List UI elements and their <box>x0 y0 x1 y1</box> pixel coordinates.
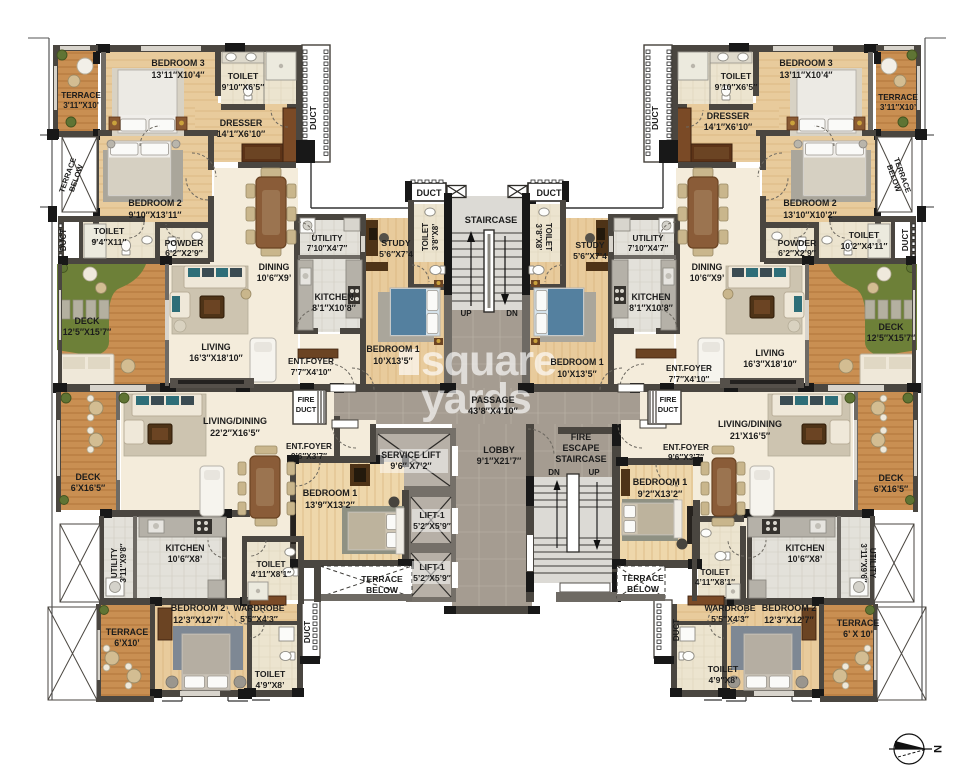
svg-text:UTILITY: UTILITY <box>110 547 119 578</box>
svg-text:10’2″X4’11″: 10’2″X4’11″ <box>841 241 888 251</box>
svg-text:BEDROOM 1: BEDROOM 1 <box>366 344 419 354</box>
svg-text:3’11″X9’8″: 3’11″X9’8″ <box>119 543 128 582</box>
svg-text:13’9″X13’2″: 13’9″X13’2″ <box>305 500 355 510</box>
svg-text:8’1″X10’8″: 8’1″X10’8″ <box>312 303 356 313</box>
svg-text:4’11″X8’1″: 4’11″X8’1″ <box>251 570 291 579</box>
svg-text:DECK: DECK <box>879 473 905 483</box>
svg-text:3’11″X9’6″: 3’11″X9’6″ <box>859 543 868 582</box>
svg-text:BEDROOM 1: BEDROOM 1 <box>303 488 358 498</box>
svg-text:DUCT: DUCT <box>650 105 660 130</box>
svg-text:6’X16’5″: 6’X16’5″ <box>874 484 909 494</box>
svg-text:WARDROBE: WARDROBE <box>704 603 755 613</box>
svg-text:9’1″X21’7″: 9’1″X21’7″ <box>477 456 522 466</box>
svg-text:DUCT: DUCT <box>296 405 317 414</box>
svg-text:13’10″X10’2″: 13’10″X10’2″ <box>783 210 837 220</box>
svg-text:14’1″X6’10″: 14’1″X6’10″ <box>704 122 753 132</box>
svg-text:DRESSER: DRESSER <box>707 111 750 121</box>
svg-text:BEDROOM 2: BEDROOM 2 <box>128 198 181 208</box>
svg-text:5’5″X4’3″: 5’5″X4’3″ <box>711 614 749 624</box>
svg-text:TOILET: TOILET <box>257 560 286 569</box>
svg-text:DUCT: DUCT <box>59 229 68 251</box>
svg-text:POWDER: POWDER <box>778 238 817 248</box>
svg-text:5’2″X5’9″: 5’2″X5’9″ <box>413 573 451 583</box>
svg-text:8’1″X10’8″: 8’1″X10’8″ <box>629 303 673 313</box>
svg-text:BEDROOM 2: BEDROOM 2 <box>762 603 817 613</box>
svg-text:KITCHEN: KITCHEN <box>165 543 204 553</box>
svg-text:KITCHEN: KITCHEN <box>314 292 353 302</box>
svg-text:UP: UP <box>588 468 600 477</box>
svg-text:12’3″X12’7″: 12’3″X12’7″ <box>764 615 814 625</box>
svg-text:TOILET: TOILET <box>255 669 286 679</box>
svg-text:TOILET: TOILET <box>228 71 259 81</box>
svg-text:9’4″X11″: 9’4″X11″ <box>92 237 127 247</box>
svg-text:14’1″X6’10″: 14’1″X6’10″ <box>217 129 266 139</box>
svg-text:7’7″X4’10″: 7’7″X4’10″ <box>669 375 710 384</box>
svg-text:TOILET: TOILET <box>721 71 752 81</box>
svg-text:FIRE: FIRE <box>298 395 315 404</box>
svg-text:TOILET: TOILET <box>421 223 430 251</box>
svg-text:FIRE: FIRE <box>571 432 592 442</box>
svg-text:UTILITY: UTILITY <box>312 234 343 243</box>
svg-text:21’X16’5″: 21’X16’5″ <box>730 431 771 441</box>
svg-text:TOILET: TOILET <box>94 226 125 236</box>
svg-text:TERRACE: TERRACE <box>61 91 101 100</box>
svg-text:WARDROBE: WARDROBE <box>233 603 284 613</box>
svg-text:BEDROOM 1: BEDROOM 1 <box>633 477 688 487</box>
svg-text:6’2″X2’9″: 6’2″X2’9″ <box>778 248 816 258</box>
svg-text:DECK: DECK <box>879 322 905 332</box>
svg-text:9’10″X13’11″: 9’10″X13’11″ <box>129 210 183 220</box>
svg-text:TERRACE: TERRACE <box>106 627 149 637</box>
svg-text:BELOW: BELOW <box>366 585 399 595</box>
svg-text:13’11″X10’4″: 13’11″X10’4″ <box>152 70 206 80</box>
svg-text:DN: DN <box>548 468 560 477</box>
svg-text:3’11″X10’: 3’11″X10’ <box>880 103 916 112</box>
svg-text:6’X10’: 6’X10’ <box>114 638 139 648</box>
svg-text:6’X16’5″: 6’X16’5″ <box>71 483 106 493</box>
svg-text:10’6″X9’: 10’6″X9’ <box>257 273 292 283</box>
svg-text:10’X13’5″: 10’X13’5″ <box>557 369 597 379</box>
svg-text:DUCT: DUCT <box>308 105 318 130</box>
svg-text:16’3″X18’10″: 16’3″X18’10″ <box>189 353 243 363</box>
svg-text:TERRACE: TERRACE <box>878 93 918 102</box>
svg-text:TOILET: TOILET <box>544 223 553 251</box>
svg-text:BELOW: BELOW <box>627 584 660 594</box>
svg-text:TOILET: TOILET <box>708 664 739 674</box>
svg-text:ESCAPE: ESCAPE <box>562 443 599 453</box>
svg-text:BEDROOM 1: BEDROOM 1 <box>550 357 603 367</box>
svg-text:DUCT: DUCT <box>303 621 312 643</box>
svg-text:5’2″X5’9″: 5’2″X5’9″ <box>413 521 451 531</box>
svg-text:STUDY: STUDY <box>575 240 604 250</box>
svg-text:3'11″X10': 3'11″X10' <box>63 101 99 110</box>
svg-text:FIRE: FIRE <box>660 395 677 404</box>
svg-text:DRESSER: DRESSER <box>220 118 263 128</box>
svg-text:4’9″X8’: 4’9″X8’ <box>256 680 285 690</box>
svg-text:N: N <box>931 745 943 753</box>
svg-text:12’5″X15’7″: 12’5″X15’7″ <box>867 333 916 343</box>
svg-text:3’8″X8’: 3’8″X8’ <box>534 224 543 251</box>
svg-text:LIVING/DINING: LIVING/DINING <box>203 416 267 426</box>
svg-text:ENT.FOYER: ENT.FOYER <box>666 364 712 373</box>
svg-text:DINING: DINING <box>692 262 723 272</box>
svg-text:4’9″X8’: 4’9″X8’ <box>709 675 738 685</box>
svg-text:9’10″X6’5″: 9’10″X6’5″ <box>715 82 758 92</box>
svg-text:UTILITY: UTILITY <box>633 234 664 243</box>
svg-text:LIVING: LIVING <box>755 348 784 358</box>
svg-text:7’7″X4’10″: 7’7″X4’10″ <box>291 368 332 377</box>
svg-text:BEDROOM 2: BEDROOM 2 <box>783 198 836 208</box>
svg-text:6’ X 10’: 6’ X 10’ <box>843 629 873 639</box>
svg-text:BEDROOM 2: BEDROOM 2 <box>171 603 226 613</box>
svg-text:STAIRCASE: STAIRCASE <box>465 215 517 225</box>
svg-text:POWDER: POWDER <box>165 238 204 248</box>
svg-text:TERRACE: TERRACE <box>837 618 880 628</box>
svg-text:TERRACE: TERRACE <box>622 573 664 583</box>
svg-text:KITCHEN: KITCHEN <box>631 292 670 302</box>
svg-text:9’6″ X7’2″: 9’6″ X7’2″ <box>390 461 432 471</box>
svg-text:5’6″X7’4: 5’6″X7’4 <box>573 251 607 261</box>
svg-text:LIVING: LIVING <box>201 342 230 352</box>
svg-text:LIVING/DINING: LIVING/DINING <box>718 419 782 429</box>
svg-text:5’6″X7’4: 5’6″X7’4 <box>379 249 413 259</box>
svg-text:ENT.FOYER: ENT.FOYER <box>663 443 709 452</box>
svg-text:12’5″X15’7″: 12’5″X15’7″ <box>63 327 112 337</box>
svg-text:TOILET: TOILET <box>849 230 880 240</box>
svg-text:22’2″X16’5″: 22’2″X16’5″ <box>210 428 260 438</box>
svg-text:10’6″X8’: 10’6″X8’ <box>168 554 203 564</box>
svg-text:DINING: DINING <box>259 262 290 272</box>
svg-text:UP: UP <box>460 309 472 318</box>
svg-text:9’6″X3’7″: 9’6″X3’7″ <box>291 452 327 461</box>
svg-text:9’6″X3’7″: 9’6″X3’7″ <box>668 453 704 462</box>
svg-text:DUCT: DUCT <box>901 229 910 251</box>
svg-text:DECK: DECK <box>76 472 102 482</box>
svg-text:13’11″X10’4″: 13’11″X10’4″ <box>780 70 834 80</box>
svg-text:TOILET: TOILET <box>701 568 730 577</box>
svg-text:DUCT: DUCT <box>672 619 681 641</box>
svg-text:SERVICE LIFT: SERVICE LIFT <box>381 450 441 460</box>
svg-text:6’2″X2’9″: 6’2″X2’9″ <box>165 248 203 258</box>
svg-text:10’X13’5″: 10’X13’5″ <box>373 356 413 366</box>
svg-text:DUCT: DUCT <box>417 188 442 198</box>
svg-text:LOBBY: LOBBY <box>483 445 515 455</box>
svg-text:BEDROOM 3: BEDROOM 3 <box>151 58 204 68</box>
svg-text:9’2″X13’2″: 9’2″X13’2″ <box>638 489 683 499</box>
svg-text:KITCHEN: KITCHEN <box>785 543 824 553</box>
svg-text:3’8″X8’: 3’8″X8’ <box>431 224 440 251</box>
svg-text:43’8″X4’10″: 43’8″X4’10″ <box>468 406 518 416</box>
svg-text:TERRACE: TERRACE <box>361 574 403 584</box>
svg-text:10’6″X8’: 10’6″X8’ <box>788 554 823 564</box>
svg-text:LIFT-1: LIFT-1 <box>419 562 445 572</box>
svg-text:7’10″X4’7″: 7’10″X4’7″ <box>307 244 348 253</box>
svg-text:12’3″X12’7″: 12’3″X12’7″ <box>173 615 223 625</box>
svg-text:LIFT-1: LIFT-1 <box>419 510 445 520</box>
svg-text:DN: DN <box>506 309 518 318</box>
svg-text:STUDY: STUDY <box>381 238 410 248</box>
svg-text:DUCT: DUCT <box>658 405 679 414</box>
svg-text:10’6″X9’: 10’6″X9’ <box>690 273 725 283</box>
svg-text:PASSAGE: PASSAGE <box>471 395 514 405</box>
svg-text:ENT.FOYER: ENT.FOYER <box>286 442 332 451</box>
svg-text:DECK: DECK <box>75 316 101 326</box>
svg-text:BEDROOM 3: BEDROOM 3 <box>779 58 832 68</box>
svg-text:DUCT: DUCT <box>537 188 562 198</box>
svg-text:STAIRCASE: STAIRCASE <box>555 454 606 464</box>
svg-text:16’3″X18’10″: 16’3″X18’10″ <box>743 359 797 369</box>
svg-text:5’5″X4’3″: 5’5″X4’3″ <box>240 614 278 624</box>
svg-text:UTILITY: UTILITY <box>868 548 877 579</box>
svg-text:9’10″X6’5″: 9’10″X6’5″ <box>222 82 265 92</box>
svg-text:7’10″X4’7″: 7’10″X4’7″ <box>628 244 669 253</box>
svg-text:4’11″X8’1″: 4’11″X8’1″ <box>695 578 735 587</box>
svg-text:ENT.FOYER: ENT.FOYER <box>288 357 334 366</box>
